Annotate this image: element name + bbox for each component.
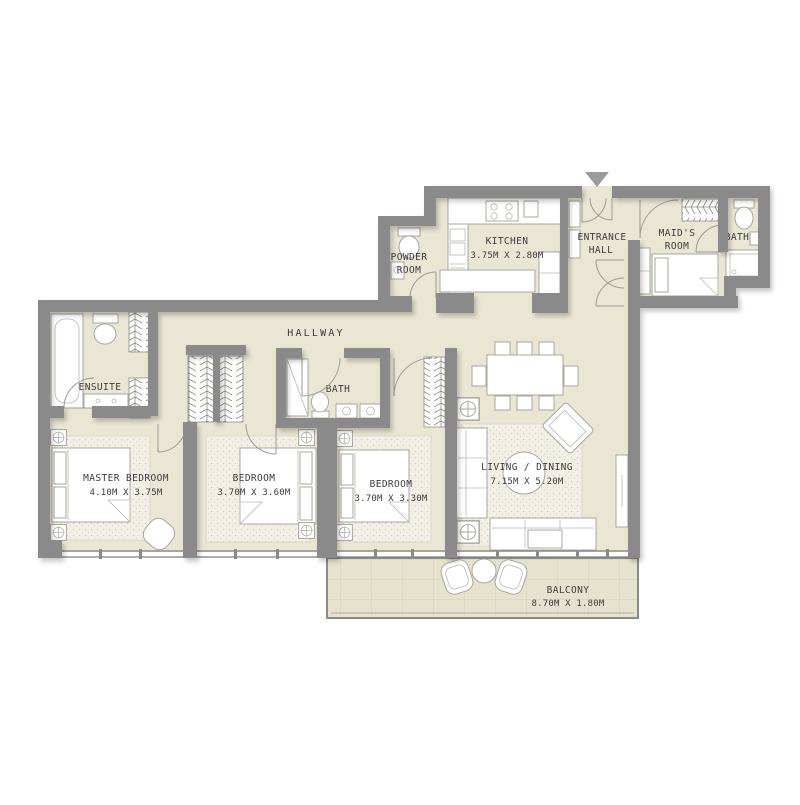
label-maids-room-1: MAID'S <box>659 228 696 239</box>
toilet-icon <box>734 200 754 229</box>
vanity-icon <box>84 394 128 408</box>
floor-plan-page: BALCONY 8.70M X 1.80M <box>0 0 800 800</box>
side-table-icon <box>457 521 479 543</box>
label-entrance-hall-2: HALL <box>589 245 613 256</box>
label-maids-bath: BATH <box>725 232 749 243</box>
nightstand-icon <box>51 430 67 446</box>
wardrobe-icon <box>217 356 243 422</box>
label-bedroom3-dims: 3.70M X 3.30M <box>354 494 427 504</box>
wardrobe-icon <box>682 199 722 221</box>
toilet-icon <box>312 392 330 418</box>
coffee-table-icon <box>503 452 545 494</box>
floor-plan: BALCONY 8.70M X 1.80M <box>0 0 800 800</box>
label-maids-room-2: ROOM <box>665 241 689 252</box>
side-table-icon <box>457 398 479 420</box>
label-master-bedroom-dims: 4.10M X 3.75M <box>89 488 162 498</box>
stove-icon <box>486 201 518 221</box>
label-living-dining: LIVING / DINING <box>481 462 573 473</box>
toilet-icon <box>93 314 118 344</box>
label-powder-room-2: ROOM <box>397 265 421 276</box>
label-bedroom2-dims: 3.70M X 3.60M <box>217 488 290 498</box>
nightstand-icon <box>299 523 315 539</box>
label-bedroom3: BEDROOM <box>370 479 413 490</box>
bed-icon <box>240 448 316 524</box>
wardrobe-icon <box>424 357 445 427</box>
tv-console-icon <box>616 455 628 527</box>
label-powder-room-1: POWDER <box>391 252 428 263</box>
nightstand-icon <box>51 525 67 541</box>
sofa-icon <box>456 428 487 518</box>
label-balcony: BALCONY <box>547 585 590 596</box>
label-balcony-dims: 8.70M X 1.80M <box>531 599 604 609</box>
kitchen-appliance <box>524 201 538 217</box>
entrance-arrow-icon <box>585 172 609 187</box>
label-bath: BATH <box>326 384 350 395</box>
wardrobe-icon <box>188 356 214 422</box>
nightstand-icon <box>337 431 353 447</box>
entry-cabinet <box>569 201 580 258</box>
balcony-table-icon <box>472 559 496 583</box>
label-ensuite: ENSUITE <box>79 382 122 393</box>
nightstand-icon <box>337 525 353 541</box>
label-bedroom2: BEDROOM <box>233 473 276 484</box>
balcony: BALCONY 8.70M X 1.80M <box>327 557 638 618</box>
label-entrance-hall-1: ENTRANCE <box>578 232 627 243</box>
kitchen-island <box>440 270 535 292</box>
label-living-dining-dims: 7.15M X 5.20M <box>490 477 563 487</box>
label-hallway: HALLWAY <box>287 328 345 339</box>
shower-icon <box>287 359 308 416</box>
label-kitchen: KITCHEN <box>486 236 529 247</box>
nightstand-icon <box>299 430 315 446</box>
wardrobe-icon <box>129 312 150 352</box>
sofa-icon <box>490 518 596 550</box>
label-kitchen-dims: 3.75M X 2.80M <box>470 251 543 261</box>
bed-icon <box>652 254 718 296</box>
bed-icon <box>52 448 130 522</box>
label-master-bedroom: MASTER BEDROOM <box>83 473 169 484</box>
